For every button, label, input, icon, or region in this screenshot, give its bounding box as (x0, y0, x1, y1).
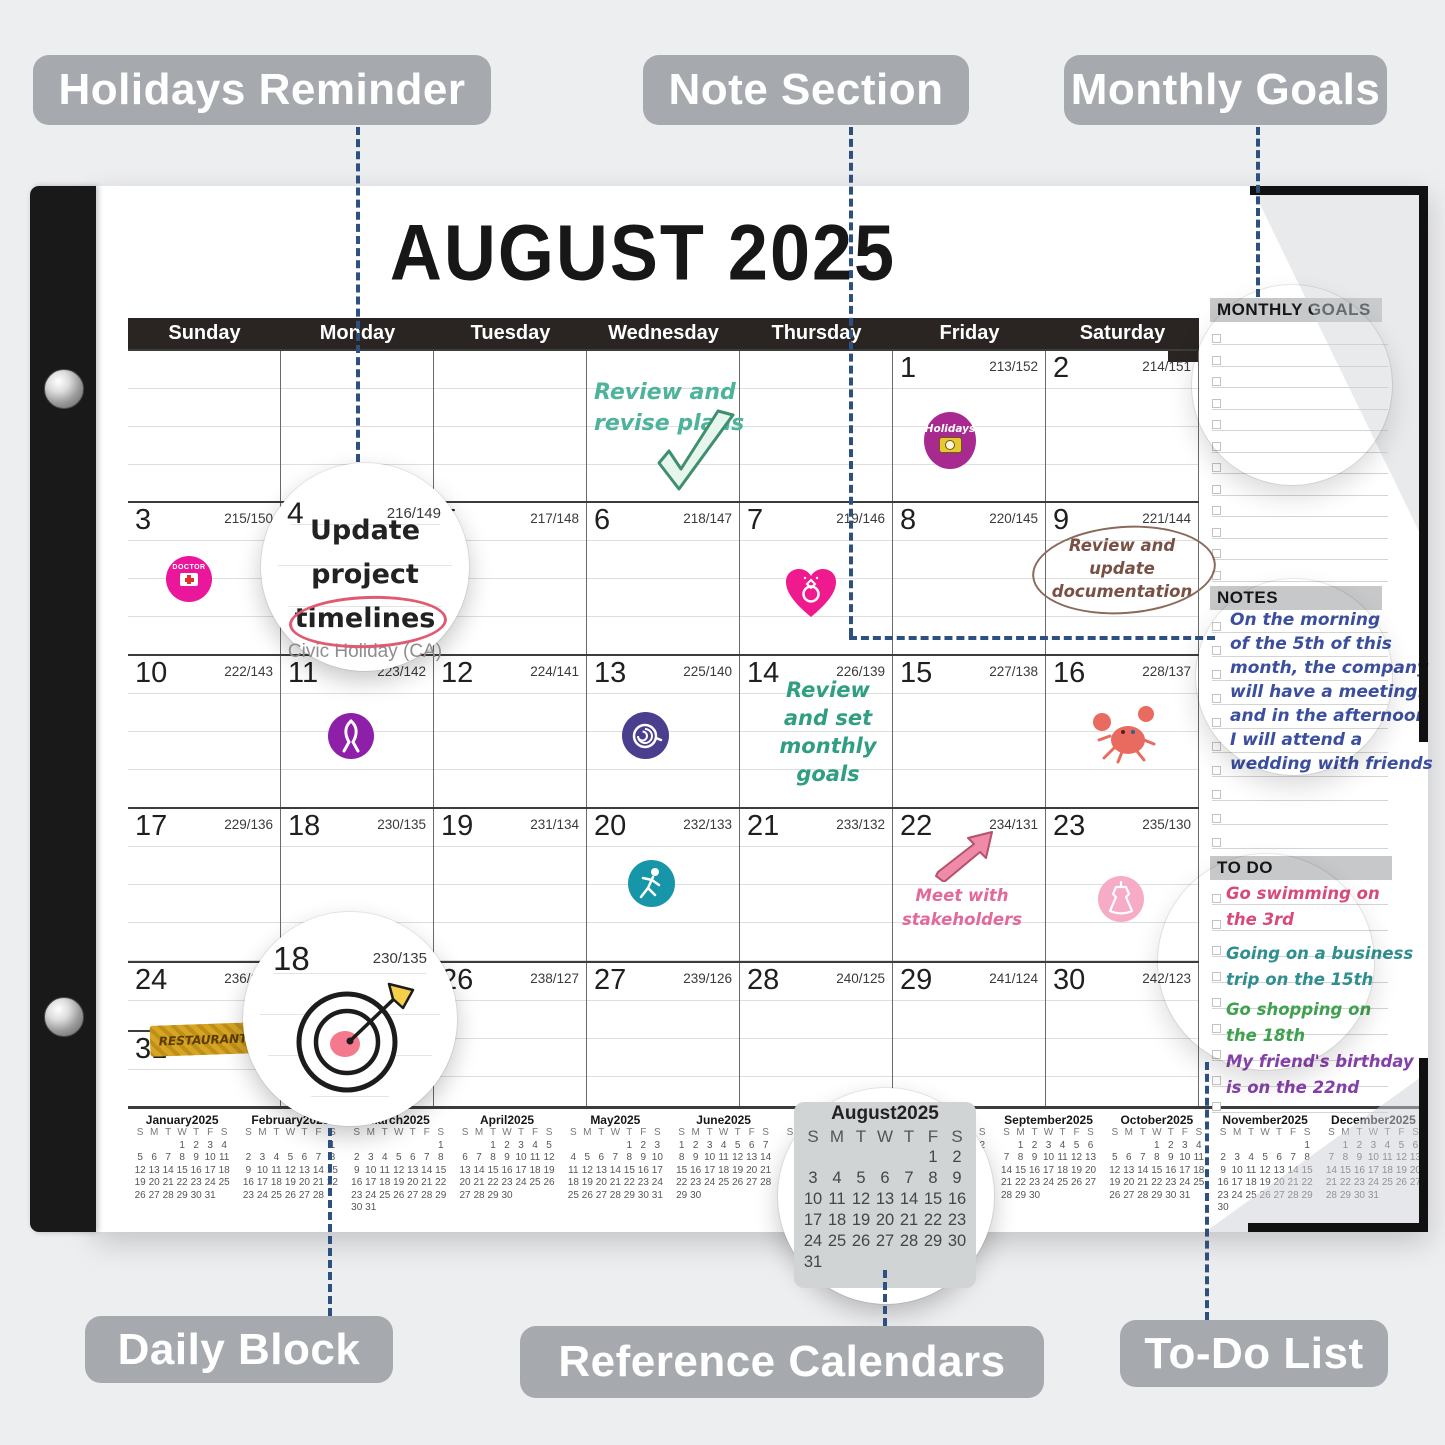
mini-day: 24 (703, 1177, 717, 1190)
day-number: 19 (441, 810, 473, 843)
mini-day: 7 (161, 1152, 175, 1165)
mini-day: 27 (594, 1190, 608, 1203)
mini-day (897, 1252, 921, 1273)
day-number: 24 (135, 964, 167, 997)
mini-day: 26 (133, 1190, 147, 1203)
mini-weekday-row: SMTWTFS (994, 1127, 1102, 1140)
camera-icon (939, 437, 962, 453)
mini-day: 19 (1258, 1177, 1272, 1190)
mini-day: 8 (1014, 1152, 1028, 1165)
mini-day (849, 1147, 873, 1168)
mini-day (801, 1147, 825, 1168)
mini-weekday: T (1164, 1127, 1178, 1140)
mini-day: 26 (849, 1231, 873, 1252)
mini-day: 15 (622, 1165, 636, 1178)
mini-day: 9 (636, 1152, 650, 1165)
mini-day: 21 (161, 1177, 175, 1190)
mini-day-row: 11121314151617 (561, 1165, 669, 1178)
mini-day: 10 (1042, 1152, 1056, 1165)
mini-day-row: 3031 (345, 1202, 453, 1215)
mini-weekday: F (1286, 1127, 1300, 1140)
mini-day: 9 (189, 1152, 203, 1165)
reference-calendars-strip: January2025SMTWTFS1234567891011121314151… (128, 1106, 1428, 1232)
day-number: 30 (1053, 964, 1085, 997)
mini-day: 16 (241, 1177, 255, 1190)
ribbon-sticker (328, 713, 374, 759)
mini-day: 2 (636, 1140, 650, 1153)
mini-day (378, 1202, 392, 1215)
mini-day (849, 1252, 873, 1273)
todo-item-line: trip on the 15th (1226, 970, 1373, 989)
mini-day: 22 (434, 1177, 448, 1190)
mini-day: 15 (175, 1165, 189, 1178)
mini-day: 29 (1014, 1190, 1028, 1203)
mini-day: 24 (1230, 1190, 1244, 1203)
mini-day: 20 (458, 1177, 472, 1190)
mini-day (717, 1190, 731, 1203)
mini-day: 2 (241, 1152, 255, 1165)
mini-day: 9 (350, 1165, 364, 1178)
day-number: 1 (900, 352, 916, 385)
mini-day: 21 (759, 1165, 773, 1178)
mini-day-row: 262728293031 (1103, 1190, 1211, 1203)
mini-day-row: 12131415161718 (1103, 1165, 1211, 1178)
mini-day (1272, 1202, 1286, 1215)
mini-day (1192, 1190, 1206, 1203)
mini-day: 29 (675, 1190, 689, 1203)
mini-day-row: 14151617181920 (994, 1165, 1102, 1178)
mini-day (255, 1140, 269, 1153)
mini-day-row: 12345 (453, 1140, 561, 1153)
mini-weekday: T (897, 1126, 921, 1147)
callout-todo-list: To-Do List (1120, 1320, 1388, 1387)
notes-text-line: will have a meeting. (1230, 682, 1424, 702)
mini-weekday: T (406, 1127, 420, 1140)
mini-day: 4 (1244, 1152, 1258, 1165)
mini-weekday: M (255, 1127, 269, 1140)
mini-day: 3 (1366, 1140, 1380, 1153)
checkbox-icon (1212, 399, 1221, 408)
mini-day: 7 (311, 1152, 325, 1165)
mini-day: 20 (594, 1177, 608, 1190)
mini-day: 1 (1300, 1140, 1314, 1153)
mini-day: 30 (500, 1190, 514, 1203)
mini-day-row: 1 (1211, 1140, 1319, 1153)
mini-day: 24 (203, 1177, 217, 1190)
mini-day (1136, 1140, 1150, 1153)
mini-day-row: 3456789 (794, 1168, 976, 1189)
lens-day-number: 18 (273, 940, 310, 978)
mini-day (580, 1140, 594, 1153)
day-number: 21 (747, 810, 779, 843)
mini-day: 22 (622, 1177, 636, 1190)
mini-weekday: S (434, 1127, 448, 1140)
checkbox-icon (1212, 485, 1221, 494)
mini-day: 8 (434, 1152, 448, 1165)
cell-note-set-monthly-goals: goals (796, 762, 859, 786)
day-number: 18 (288, 810, 320, 843)
callout-reference-calendars: Reference Calendars (520, 1326, 1044, 1398)
mini-day: 15 (434, 1165, 448, 1178)
mini-day: 26 (1108, 1190, 1122, 1203)
mini-day-row: 24252627282930 (794, 1231, 976, 1252)
mini-day: 14 (420, 1165, 434, 1178)
mini-day: 23 (689, 1177, 703, 1190)
mini-day: 12 (731, 1152, 745, 1165)
mini-day: 21 (608, 1177, 622, 1190)
mini-day (594, 1140, 608, 1153)
mini-day: 21 (1286, 1177, 1300, 1190)
mini-day-row: 21222324252627 (994, 1177, 1102, 1190)
callout-note-section: Note Section (643, 55, 969, 125)
day-code: 218/147 (683, 511, 732, 526)
calendar-day-cell: 28240/125 (740, 963, 893, 1106)
page-title: AUGUST 2025 (390, 208, 896, 298)
mini-day: 10 (255, 1165, 269, 1178)
mini-day: 27 (1122, 1190, 1136, 1203)
mini-day: 16 (1352, 1165, 1366, 1178)
mini-day: 8 (486, 1152, 500, 1165)
mini-day: 6 (873, 1168, 897, 1189)
mini-day: 5 (731, 1140, 745, 1153)
mini-day: 14 (1136, 1165, 1150, 1178)
mini-day: 1 (434, 1140, 448, 1153)
mini-day: 7 (472, 1152, 486, 1165)
mini-day: 28 (608, 1190, 622, 1203)
mini-day: 4 (378, 1152, 392, 1165)
mini-day: 6 (458, 1152, 472, 1165)
mini-day: 17 (203, 1165, 217, 1178)
mini-day: 28 (420, 1190, 434, 1203)
mini-weekday: S (458, 1127, 472, 1140)
grommet-bottom (44, 997, 84, 1037)
mini-day-row: 1234 (128, 1140, 236, 1153)
mini-day: 31 (1366, 1190, 1380, 1203)
mini-day (420, 1140, 434, 1153)
mini-weekday: W (1366, 1127, 1380, 1140)
mini-day: 23 (1216, 1190, 1230, 1203)
leader-line-note (849, 127, 853, 636)
mini-day: 14 (897, 1189, 921, 1210)
mini-day: 26 (1394, 1177, 1408, 1190)
mini-day: 24 (1178, 1177, 1192, 1190)
checkbox-icon (1212, 790, 1221, 799)
checkbox-icon (1212, 377, 1221, 386)
mini-day: 5 (1258, 1152, 1272, 1165)
mini-day: 16 (500, 1165, 514, 1178)
mini-day-row: 22232425262728 (669, 1177, 777, 1190)
mini-day-row: 23242526272829 (1211, 1190, 1319, 1203)
mini-day: 25 (1244, 1190, 1258, 1203)
mini-day (921, 1252, 945, 1273)
calendar-day-cell: 8220/145 (893, 503, 1046, 654)
mini-weekday-row: SMTWTFS (345, 1127, 453, 1140)
mini-day: 5 (133, 1152, 147, 1165)
mini-day: 5 (392, 1152, 406, 1165)
mini-day: 3 (1178, 1140, 1192, 1153)
mini-day: 2 (689, 1140, 703, 1153)
mini-day: 26 (1258, 1190, 1272, 1203)
mini-day (542, 1190, 556, 1203)
day-code: 230/135 (377, 817, 426, 832)
mini-weekday: S (217, 1127, 231, 1140)
mini-day-row: 10111213141516 (794, 1189, 976, 1210)
day-code: 220/145 (989, 511, 1038, 526)
mini-day: 16 (350, 1177, 364, 1190)
mini-day-row: 12131415161718 (128, 1165, 236, 1178)
mini-day (147, 1140, 161, 1153)
day-code: 238/127 (530, 971, 579, 986)
mini-day: 18 (1192, 1165, 1206, 1178)
mini-day: 28 (1136, 1190, 1150, 1203)
mini-day (378, 1140, 392, 1153)
mini-day: 22 (1014, 1177, 1028, 1190)
calendar-day-cell: 29241/124 (893, 963, 1046, 1106)
mini-day: 4 (566, 1152, 580, 1165)
mini-weekday: W (1258, 1127, 1272, 1140)
mini-day-row: 30 (1211, 1202, 1319, 1215)
mini-day: 27 (458, 1190, 472, 1203)
restaurant-sticker: RESTAURANT (149, 1022, 256, 1057)
mini-weekday: F (1394, 1127, 1408, 1140)
mini-weekday: S (350, 1127, 364, 1140)
mini-month-title: June2025 (669, 1113, 777, 1127)
mini-weekday: S (133, 1127, 147, 1140)
dartboard-icon (285, 974, 425, 1104)
mini-day: 23 (636, 1177, 650, 1190)
calendar-day-cell: 15227/138 (893, 656, 1046, 807)
mini-day: 18 (566, 1177, 580, 1190)
mini-weekday: W (1042, 1127, 1056, 1140)
mini-day: 12 (133, 1165, 147, 1178)
mini-day: 11 (1192, 1152, 1206, 1165)
mini-weekday: T (1028, 1127, 1042, 1140)
calendar-day-cell: 27239/126 (587, 963, 740, 1106)
note-lens: 4 216/149 Update project timelines Civic… (261, 463, 469, 671)
mini-day: 30 (189, 1190, 203, 1203)
mini-day: 6 (594, 1152, 608, 1165)
doctor-sticker-label: DOCTOR (172, 564, 205, 571)
mini-day (406, 1202, 420, 1215)
mini-day: 23 (500, 1177, 514, 1190)
mini-weekday: S (1300, 1127, 1314, 1140)
mini-day (269, 1140, 283, 1153)
mini-weekday-row: SMTWTFS (794, 1126, 976, 1147)
mini-day: 24 (1366, 1177, 1380, 1190)
mini-weekday: T (703, 1127, 717, 1140)
mini-weekday: T (297, 1127, 311, 1140)
mini-day: 10 (364, 1165, 378, 1178)
mini-weekday: M (689, 1127, 703, 1140)
mini-weekday: W (1150, 1127, 1164, 1140)
mini-month-title: January2025 (128, 1113, 236, 1127)
mini-weekday: S (945, 1126, 969, 1147)
doctor-sticker: DOCTOR (166, 556, 212, 602)
day-number: 15 (900, 657, 932, 690)
mini-day-row: 17181920212223 (794, 1210, 976, 1231)
mini-day: 21 (1000, 1177, 1014, 1190)
mini-weekday: S (566, 1127, 580, 1140)
mini-day: 26 (1070, 1177, 1084, 1190)
checkbox-icon (1212, 972, 1221, 981)
mini-day: 15 (1150, 1165, 1164, 1178)
mini-day: 15 (1338, 1165, 1352, 1178)
mini-day: 5 (1394, 1140, 1408, 1153)
mini-day (1324, 1140, 1338, 1153)
lens-note-line: project (261, 559, 469, 590)
mini-day: 4 (1192, 1140, 1206, 1153)
mini-day-row: 282930 (994, 1190, 1102, 1203)
mini-day: 28 (472, 1190, 486, 1203)
mini-weekday: F (311, 1127, 325, 1140)
mini-day: 19 (392, 1177, 406, 1190)
mini-day: 13 (458, 1165, 472, 1178)
mini-day: 20 (745, 1165, 759, 1178)
mini-day: 12 (542, 1152, 556, 1165)
day-number: 13 (594, 657, 626, 690)
mini-day: 15 (1300, 1165, 1314, 1178)
corner-edge-bottom (1248, 1223, 1428, 1232)
mini-day (1000, 1140, 1014, 1153)
mini-day: 3 (801, 1168, 825, 1189)
mini-day: 22 (921, 1210, 945, 1231)
mini-day: 14 (472, 1165, 486, 1178)
leader-line-monthly-goals (1256, 127, 1260, 297)
mini-day: 9 (1164, 1152, 1178, 1165)
mini-day-row: 12 (794, 1147, 976, 1168)
mini-day: 20 (147, 1177, 161, 1190)
mini-day (297, 1140, 311, 1153)
mini-day (1122, 1140, 1136, 1153)
checkbox-icon (1212, 1102, 1221, 1111)
mini-day: 23 (1028, 1177, 1042, 1190)
mini-day (1244, 1140, 1258, 1153)
day-number: 7 (747, 504, 763, 537)
mini-day-row: 2345678 (1211, 1152, 1319, 1165)
checkbox-icon (1212, 622, 1221, 631)
mini-day: 21 (897, 1210, 921, 1231)
mini-weekday: F (528, 1127, 542, 1140)
mini-calendar: April2025SMTWTFS123456789101112131415161… (453, 1109, 561, 1232)
mini-weekday: F (745, 1127, 759, 1140)
callout-daily-block: Daily Block (85, 1316, 393, 1383)
mini-day: 28 (1000, 1190, 1014, 1203)
panel-line (1212, 438, 1388, 453)
weekday-label: Thursday (740, 318, 893, 349)
mini-day: 7 (1286, 1152, 1300, 1165)
mini-day: 27 (873, 1231, 897, 1252)
mini-day-row: 23242526272829 (345, 1190, 453, 1203)
day-code: 219/146 (836, 511, 885, 526)
mini-day: 22 (175, 1177, 189, 1190)
mini-day: 24 (650, 1177, 664, 1190)
mini-day: 6 (1122, 1152, 1136, 1165)
mini-month-title: December2025 (1319, 1113, 1427, 1127)
checkbox-icon (1212, 920, 1221, 929)
mini-day: 9 (500, 1152, 514, 1165)
mini-day (364, 1140, 378, 1153)
mini-weekday: S (542, 1127, 556, 1140)
mini-day: 4 (217, 1140, 231, 1153)
mini-day: 10 (1178, 1152, 1192, 1165)
mini-day: 27 (1084, 1177, 1098, 1190)
mini-day-row: 15161718192021 (669, 1165, 777, 1178)
mini-day: 2 (945, 1147, 969, 1168)
checkbox-icon (1212, 998, 1221, 1007)
leader-line-holidays (356, 127, 360, 462)
mini-day: 10 (1230, 1165, 1244, 1178)
mini-day: 31 (1178, 1190, 1192, 1203)
mini-day: 16 (1164, 1165, 1178, 1178)
notes-text-line: wedding with friends (1230, 754, 1433, 774)
mini-month-title: October2025 (1103, 1113, 1211, 1127)
mini-day: 16 (1028, 1165, 1042, 1178)
mini-weekday: S (1216, 1127, 1230, 1140)
mini-day: 20 (406, 1177, 420, 1190)
mini-day: 21 (1324, 1177, 1338, 1190)
mini-day: 24 (801, 1231, 825, 1252)
mini-day: 4 (269, 1152, 283, 1165)
mini-day: 24 (255, 1190, 269, 1203)
mini-day: 5 (580, 1152, 594, 1165)
mini-day (1084, 1190, 1098, 1203)
mini-weekday: W (283, 1127, 297, 1140)
cell-note-meet-stakeholders: stakeholders (902, 910, 1022, 929)
mini-weekday: T (486, 1127, 500, 1140)
checkbox-icon (1212, 1076, 1221, 1085)
mini-weekday: S (759, 1127, 773, 1140)
mini-day: 12 (283, 1165, 297, 1178)
mini-day: 6 (1272, 1152, 1286, 1165)
mini-day: 18 (528, 1165, 542, 1178)
day-number: 6 (594, 504, 610, 537)
calendar-day-cell: 17229/136 (128, 809, 281, 961)
product-image: AUGUST 2025 SundayMondayTuesdayWednesday… (0, 0, 1445, 1445)
day-number: 9 (1053, 504, 1069, 537)
mini-weekday: S (241, 1127, 255, 1140)
todo-item-line: Go shopping on (1226, 1000, 1371, 1019)
checkbox-icon (1212, 946, 1221, 955)
mini-weekday: M (580, 1127, 594, 1140)
mini-day-row: 78910111213 (994, 1152, 1102, 1165)
mini-weekday-row: SMTWTFS (1319, 1127, 1427, 1140)
mini-day: 12 (1394, 1152, 1408, 1165)
mini-day: 23 (350, 1190, 364, 1203)
todo-item-line: is on the 22nd (1226, 1078, 1359, 1097)
mini-day: 15 (675, 1165, 689, 1178)
mini-day: 17 (801, 1210, 825, 1231)
mini-day (897, 1147, 921, 1168)
lens-day-code: 230/135 (373, 950, 427, 967)
mini-day-row: 1 (345, 1140, 453, 1153)
mini-day: 23 (1352, 1177, 1366, 1190)
mini-day: 4 (1380, 1140, 1394, 1153)
mini-day (434, 1202, 448, 1215)
mini-day: 13 (1122, 1165, 1136, 1178)
mini-weekday: F (636, 1127, 650, 1140)
mini-day: 2 (189, 1140, 203, 1153)
checkbox-icon (1212, 528, 1221, 537)
mini-day-row: 19202122232425 (128, 1177, 236, 1190)
mini-day: 22 (1338, 1177, 1352, 1190)
cell-note-revise-plans: Review and (594, 380, 736, 405)
mini-day: 30 (945, 1231, 969, 1252)
day-code: 235/130 (1142, 817, 1191, 832)
mini-day: 2 (1352, 1140, 1366, 1153)
mini-day: 31 (203, 1190, 217, 1203)
mini-day: 6 (745, 1140, 759, 1153)
calendar-day-cell: 12224/141 (434, 656, 587, 807)
